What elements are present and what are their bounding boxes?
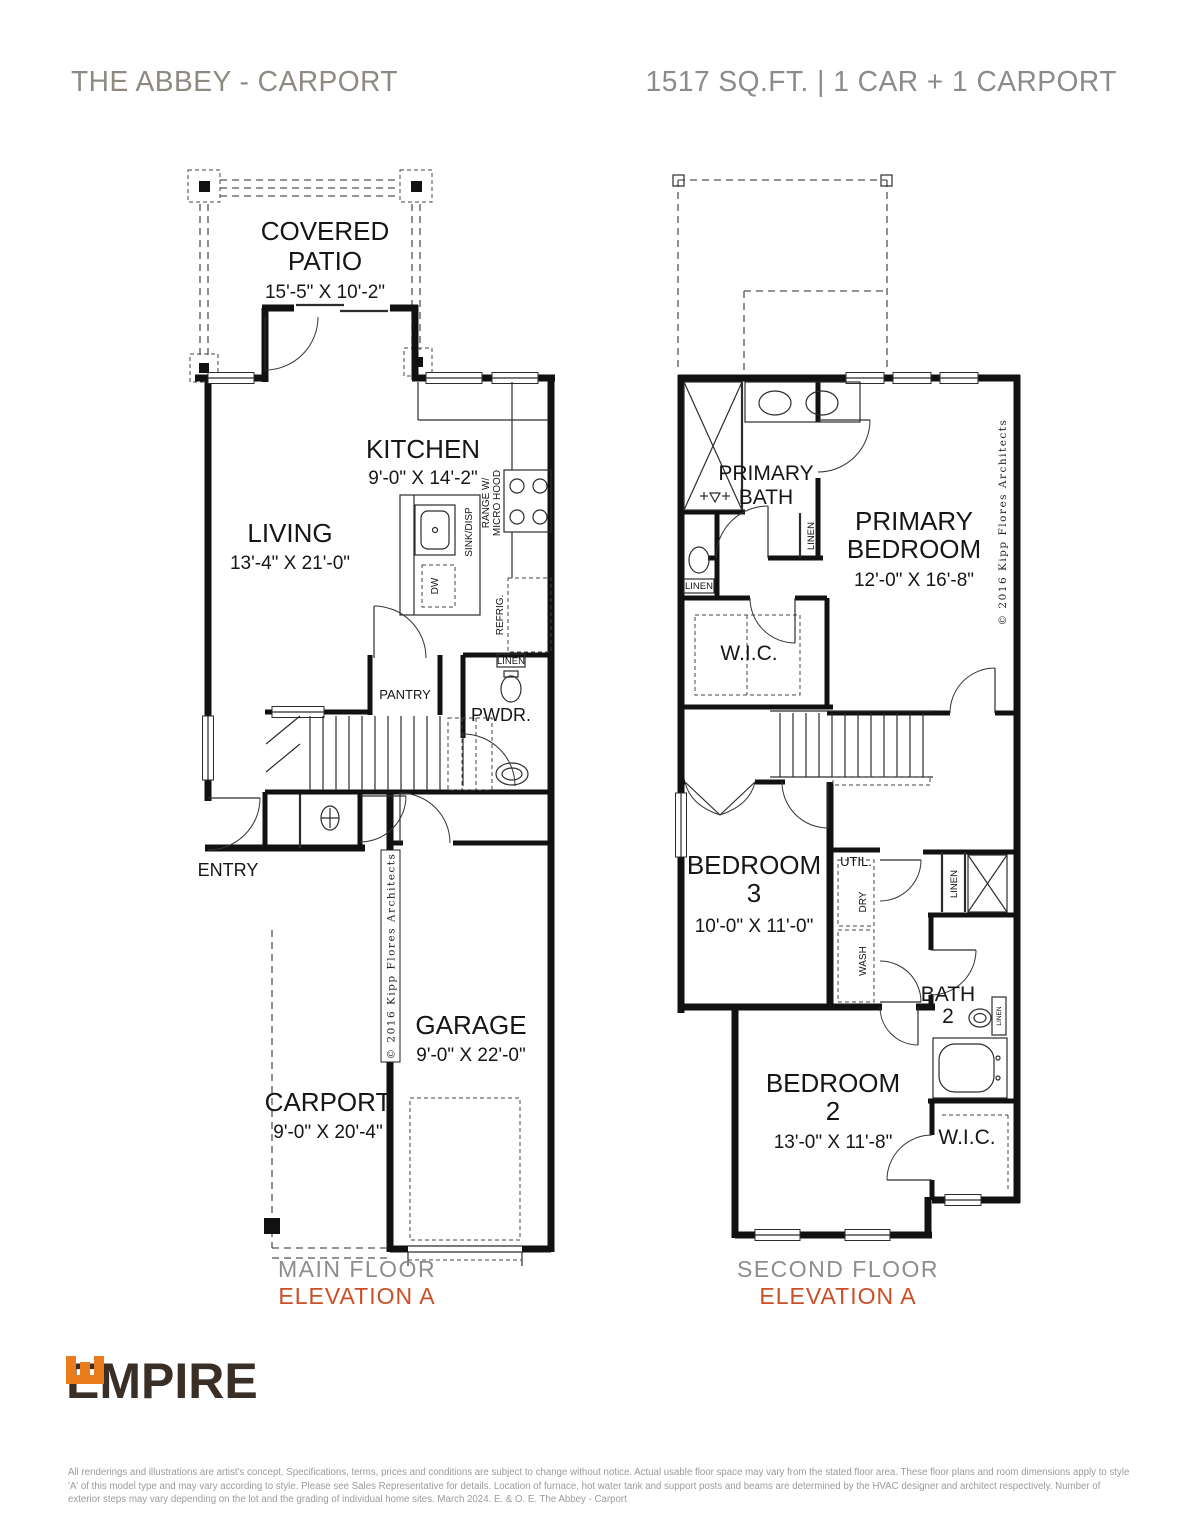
dry-label: DRY <box>858 891 869 912</box>
room-label-bedroom2: BEDROOM <box>766 1068 900 1098</box>
architect-copyright: © 2016 Kipp Flores Architects <box>997 419 1009 626</box>
caption-elevation: ELEVATION A <box>257 1283 457 1310</box>
linen-label: LINEN <box>949 870 960 898</box>
linen-label: LINEN <box>685 581 713 592</box>
caption-floor-name: MAIN FLOOR <box>257 1256 457 1283</box>
sliding-door-icon <box>294 301 390 315</box>
toilet-icon <box>501 671 521 702</box>
room-label-kitchen: KITCHEN <box>366 434 480 464</box>
room-label-living: LIVING <box>247 518 332 548</box>
room-label-patio2: PATIO <box>288 246 362 276</box>
room-label-primary-bath2: BATH <box>739 486 793 509</box>
roof-outline <box>673 175 892 372</box>
page-specs: 1517 SQ.FT. | 1 CAR + 1 CARPORT <box>646 66 1117 99</box>
room-dims-primary-bedroom: 12'-0" X 16'-8" <box>854 570 974 591</box>
sink-disp-label: SINK/DISP <box>464 507 475 557</box>
range-label: RANGE W/ <box>481 478 492 529</box>
tub-icon <box>933 1038 1007 1098</box>
room-label-bath2: BATH <box>921 983 975 1006</box>
vanity-icon <box>745 382 860 422</box>
room-label-pwdr: PWDR. <box>471 705 531 725</box>
refrigerator-icon <box>508 578 551 652</box>
linen-label: LINEN <box>806 522 817 550</box>
room-label-bedroom3b: 3 <box>747 878 761 908</box>
room-dims-patio: 15'-5" X 10'-2" <box>265 282 385 303</box>
bath2-sink-icon <box>969 1009 991 1027</box>
garage-parking-outline <box>410 1098 520 1240</box>
room-label-bedroom2b: 2 <box>826 1096 840 1126</box>
room-label-wic-primary: W.I.C. <box>720 642 777 665</box>
carport-post-icon <box>264 1218 280 1234</box>
second-floor-caption: SECOND FLOOR ELEVATION A <box>728 1256 948 1310</box>
range-icon <box>504 470 551 578</box>
svg-text:© 2016 Kipp Flores Architects: © 2016 Kipp Flores Architects <box>386 853 398 1060</box>
room-label-patio: COVERED <box>261 216 390 246</box>
room-label-pantry: PANTRY <box>379 687 431 702</box>
room-dims-living: 13'-4" X 21'-0" <box>230 553 350 574</box>
page-title: THE ABBEY - CARPORT <box>71 66 398 99</box>
room-label-util: UTIL. <box>840 854 872 869</box>
room-label-primary-bedroom: PRIMARY <box>855 506 973 536</box>
floorplan-sheet: THE ABBEY - CARPORT 1517 SQ.FT. | 1 CAR … <box>0 0 1187 1536</box>
disclaimer-text: All renderings and illustrations are art… <box>68 1466 1130 1507</box>
sink-icon <box>415 505 455 555</box>
powder-sink-icon <box>496 763 528 785</box>
room-label-bedroom3: BEDROOM <box>687 850 821 880</box>
room-label-garage: GARAGE <box>415 1010 526 1040</box>
caption-floor-name: SECOND FLOOR <box>728 1256 948 1283</box>
room-label-wic2: W.I.C. <box>938 1126 995 1149</box>
shower-icon <box>684 382 742 510</box>
second-floor-plan: LINEN LINEN DRY WASH LINEN <box>650 160 1050 1310</box>
caption-elevation: ELEVATION A <box>728 1283 948 1310</box>
hall-closet-icon <box>968 855 1007 912</box>
room-label-entry: ENTRY <box>198 860 259 880</box>
room-dims-bedroom3: 10'-0" X 11'-0" <box>695 916 814 937</box>
stairs <box>770 713 933 785</box>
half-bath-toilet-icon <box>321 806 339 830</box>
covered-patio-outline <box>188 170 432 382</box>
room-dims-garage: 9'-0" X 22'-0" <box>416 1045 525 1066</box>
room-label-primary-bedroom2: BEDROOM <box>847 534 981 564</box>
crown-icon <box>66 1356 104 1384</box>
main-floor-plan: RANGE W/ MICRO HOOD REFRIG. SINK/DISP DW… <box>160 160 560 1310</box>
empire-logo: EMPIRE <box>66 1356 258 1405</box>
room-label-bath2b: 2 <box>942 1005 954 1028</box>
room-label-primary-bath: PRIMARY <box>718 462 813 485</box>
main-floor-caption: MAIN FLOOR ELEVATION A <box>257 1256 457 1310</box>
linen-label: LINEN <box>497 656 525 667</box>
micro-hood-label: MICRO HOOD <box>492 470 503 536</box>
refrig-label: REFRIG. <box>495 595 506 636</box>
room-dims-carport: 9'-0" X 20'-4" <box>273 1122 382 1143</box>
washer-dryer-icon <box>838 860 874 1002</box>
room-label-carport: CARPORT <box>265 1087 392 1117</box>
wash-label: WASH <box>858 946 869 976</box>
stairs <box>266 716 492 790</box>
patio-post-icon <box>188 170 432 382</box>
linen-label: LINEN <box>996 1006 1003 1025</box>
dw-label: DW <box>430 577 441 594</box>
room-dims-kitchen: 9'-0" X 14'-2" <box>368 468 477 489</box>
room-dims-bedroom2: 13'-0" X 11'-8" <box>774 1132 893 1153</box>
architect-copyright: © 2016 Kipp Flores Architects <box>381 850 400 1062</box>
